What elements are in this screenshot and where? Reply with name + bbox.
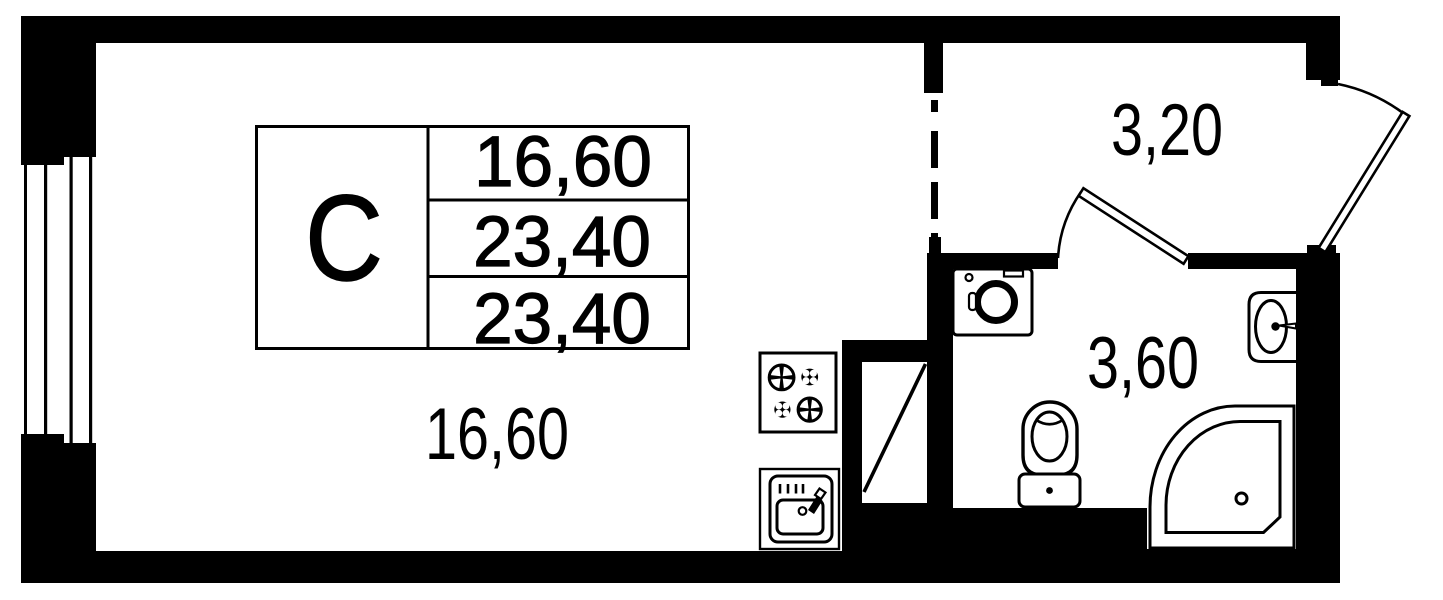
svg-text:23,40: 23,40	[473, 280, 651, 359]
svg-text:23,40: 23,40	[473, 203, 651, 282]
svg-text:С: С	[305, 170, 383, 306]
svg-text:3,20: 3,20	[1111, 90, 1223, 171]
svg-text:3,60: 3,60	[1087, 323, 1199, 404]
svg-text:16,60: 16,60	[425, 394, 569, 475]
svg-text:16,60: 16,60	[474, 123, 652, 202]
